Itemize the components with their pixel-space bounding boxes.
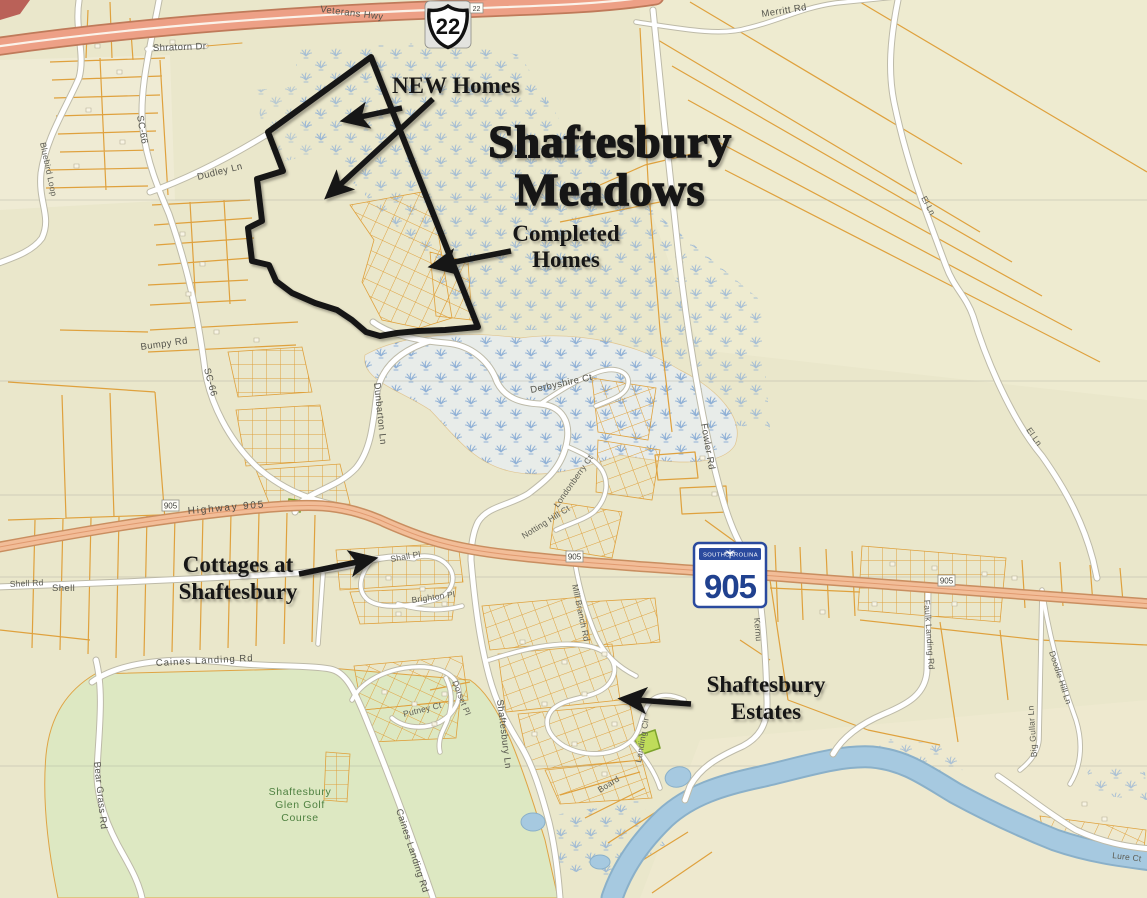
annotation-estates-line1: Shaftesbury	[707, 672, 826, 697]
route-905-small-3: 905	[940, 577, 954, 586]
annotation-cottages-line2: Shaftesbury	[179, 579, 298, 604]
road-label-shratorn-dr: Shratorn Dr	[153, 41, 207, 54]
sc905-number: 905	[704, 568, 757, 605]
parcel-map-canvas[interactable]: Veterans Hwy Merritt Rd Shratorn Dr SC-6…	[0, 0, 1147, 898]
annotation-completed-homes-line2: Homes	[532, 247, 600, 272]
route-905-small-1: 905	[164, 502, 178, 511]
annotation-cottages-line1: Cottages at	[183, 552, 294, 577]
road-label-shell: Shell	[52, 583, 75, 594]
map-title-line2: Meadows	[515, 164, 705, 215]
annotation-completed-homes-line1: Completed	[512, 221, 620, 246]
us22-small-number: 22	[473, 6, 481, 13]
golf-label-line2: Glen Golf	[275, 799, 325, 811]
road-label-shell-rd: Shell Rd	[10, 577, 44, 589]
sc905-state-left: SOUTH	[703, 553, 725, 559]
map-svg: Veterans Hwy Merritt Rd Shratorn Dr SC-6…	[0, 0, 1147, 898]
golf-label-line3: Course	[281, 812, 318, 824]
map-title-line1: Shaftesbury	[488, 116, 731, 167]
annotation-estates-line2: Estates	[731, 699, 801, 724]
golf-label-line1: Shaftesbury	[269, 786, 332, 798]
golf-course-area	[45, 668, 558, 898]
sc-905-shield: SOUTH CAROLINA 905	[694, 543, 766, 607]
route-905-small-2: 905	[568, 553, 582, 562]
us22-number: 22	[436, 14, 460, 39]
road-label-kernu: Kernu	[752, 617, 764, 642]
annotation-new-homes: NEW Homes	[392, 73, 520, 98]
